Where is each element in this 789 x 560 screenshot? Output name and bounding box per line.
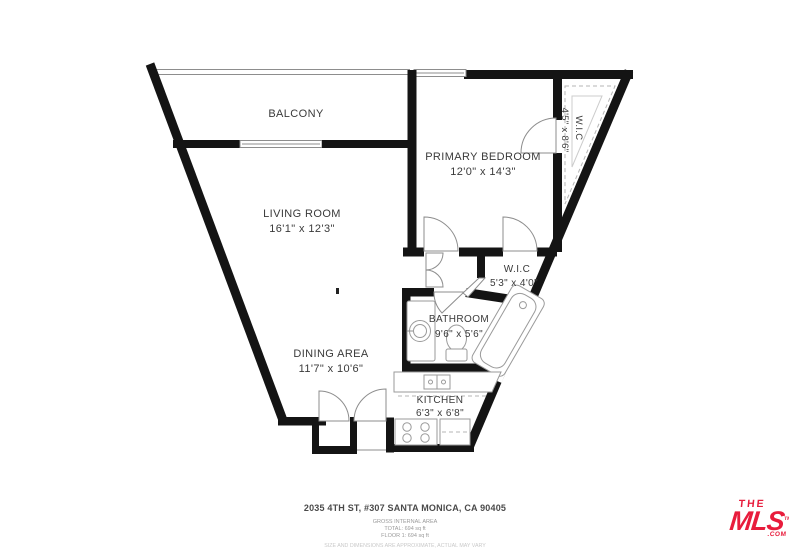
room-dims-wic-small: 5'3" x 4'0" bbox=[490, 278, 538, 289]
wic-door-arc bbox=[503, 217, 537, 251]
room-dims-bedroom: 12'0" x 14'3" bbox=[450, 166, 516, 178]
room-dims-wic-top: 4'5" x 8'6" bbox=[559, 108, 570, 153]
room-label-wic-top: W.I.C bbox=[573, 116, 584, 141]
bedroom-door-arc bbox=[424, 217, 458, 251]
mls-logo-tm: TM bbox=[784, 516, 789, 522]
mls-logo: THE MLSTM .COM bbox=[726, 499, 789, 559]
hall-bifold-door-bottom bbox=[426, 270, 443, 287]
room-label-kitchen: KITCHEN bbox=[417, 395, 464, 406]
address-line: 2035 4TH ST, #307 SANTA MONICA, CA 90405 bbox=[304, 503, 506, 513]
mls-logo-mls: MLSTM bbox=[729, 510, 789, 533]
area-total: TOTAL: 694 sq ft bbox=[384, 526, 426, 532]
footer: 2035 4TH ST, #307 SANTA MONICA, CA 90405… bbox=[304, 503, 506, 549]
room-label-living: LIVING ROOM bbox=[263, 208, 341, 220]
entry-closet-door-arc bbox=[319, 391, 349, 421]
entry-door-arc bbox=[354, 389, 386, 421]
room-label-dining: DINING AREA bbox=[293, 348, 369, 360]
stove-icon bbox=[395, 419, 437, 445]
wic-closet-lines bbox=[565, 86, 615, 204]
floor-plan-drawing: BALCONY LIVING ROOM 16'1" x 12'3" PRIMAR… bbox=[0, 0, 789, 560]
bathroom-door-arc bbox=[434, 292, 464, 313]
room-dims-kitchen: 6'3" x 6'8" bbox=[416, 408, 464, 419]
room-label-wic-small: W.I.C bbox=[504, 264, 530, 275]
room-dims-living: 16'1" x 12'3" bbox=[269, 223, 335, 235]
floor-plan-page: BALCONY LIVING ROOM 16'1" x 12'3" PRIMAR… bbox=[0, 0, 789, 560]
area-floor: FLOOR 1: 694 sq ft bbox=[381, 533, 429, 539]
closet-door-arc bbox=[521, 118, 556, 153]
hall-bifold-door-top bbox=[426, 253, 443, 270]
balcony-railing bbox=[150, 70, 410, 75]
disclaimer: SIZE AND DIMENSIONS ARE APPROXIMATE, ACT… bbox=[324, 543, 486, 549]
room-dims-bathroom: 9'6" x 5'6" bbox=[435, 329, 483, 340]
room-label-bedroom: PRIMARY BEDROOM bbox=[425, 151, 541, 163]
room-label-balcony: BALCONY bbox=[268, 108, 324, 120]
area-title: GROSS INTERNAL AREA bbox=[373, 519, 438, 525]
outlet-mark bbox=[336, 288, 339, 294]
room-dims-dining: 11'7" x 10'6" bbox=[299, 363, 364, 375]
room-label-bathroom: BATHROOM bbox=[429, 314, 489, 325]
